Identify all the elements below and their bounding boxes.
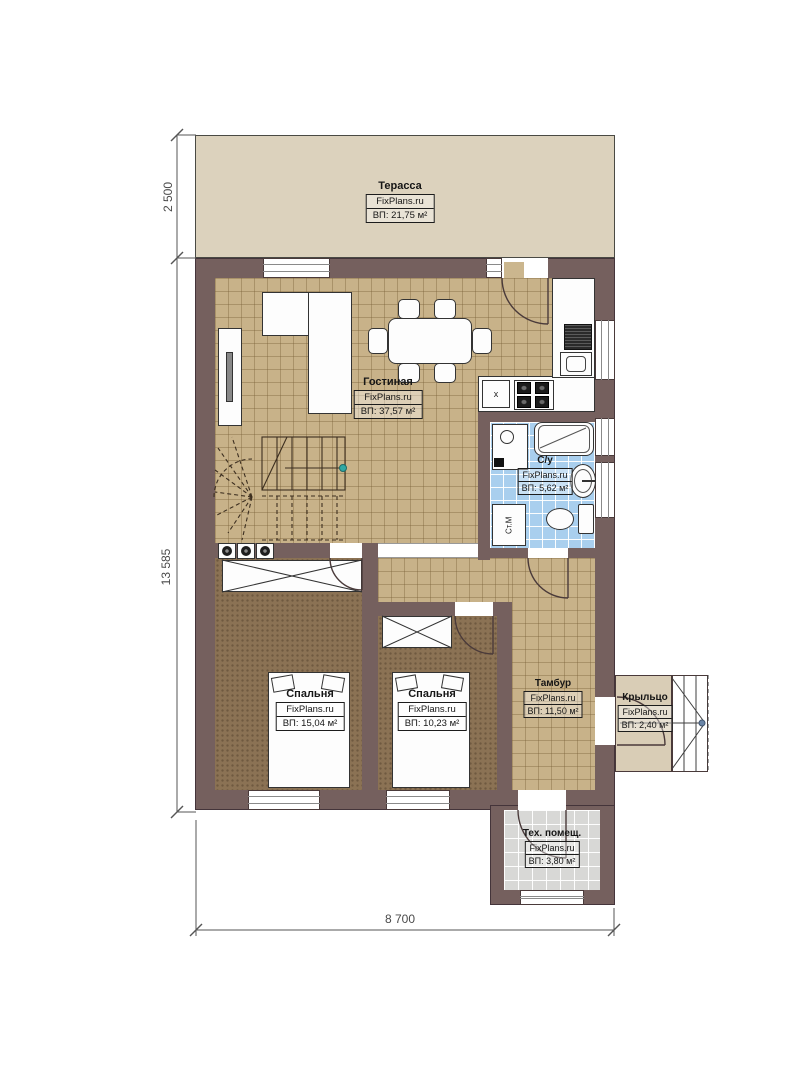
wardrobe-bedroom2 <box>382 616 452 648</box>
window-top-small <box>486 258 502 278</box>
bathroom-label: С/у FixPlans.ru ВП: 5,62 м² <box>518 455 573 496</box>
stool <box>256 543 274 559</box>
floor-plan-canvas: x Ст.М <box>0 0 792 1080</box>
terrace-label: Терасса FixPlans.ru ВП: 21,75 м² <box>366 180 435 223</box>
dining-table <box>388 318 472 364</box>
toilet-bowl <box>546 508 574 530</box>
window-tech-room <box>520 890 584 905</box>
door-opening-tech <box>518 790 566 810</box>
stool <box>218 543 236 559</box>
door-opening-bathroom <box>528 548 568 558</box>
window-kitchen-right <box>595 320 615 380</box>
stove-burner <box>535 382 549 394</box>
wall-between-bedrooms <box>362 543 378 790</box>
terrace-door-leaf <box>504 262 524 278</box>
cabinet-basin-circle <box>500 430 514 444</box>
tv-screen <box>226 352 233 402</box>
washbasin-inner <box>574 469 592 493</box>
dimension-terrace-depth: 2 500 <box>161 167 175 227</box>
stove-burner <box>517 396 531 408</box>
stove-burner <box>517 382 531 394</box>
fridge <box>564 324 592 350</box>
chair <box>434 299 456 319</box>
living-room-label: Гостиная FixPlans.ru ВП: 37,57 м² <box>354 376 423 419</box>
bedroom1-label: Спальня FixPlans.ru ВП: 15,04 м² <box>276 688 345 731</box>
window-bath-lower <box>595 462 615 518</box>
vestibule-label: Тамбур FixPlans.ru ВП: 11,50 м² <box>523 678 582 719</box>
window-bedroom2 <box>386 790 450 810</box>
tech-room-label: Тех. помещ. FixPlans.ru ВП: 3,80 м² <box>523 828 581 869</box>
chair <box>368 328 388 354</box>
window-bath-upper <box>595 418 615 456</box>
window-bedroom1 <box>248 790 320 810</box>
cabinet-detail <box>494 458 504 467</box>
porch-steps <box>672 675 708 772</box>
sink-bowl <box>566 356 586 372</box>
toilet-tank <box>578 504 594 534</box>
stool <box>237 543 255 559</box>
door-opening-porch <box>595 697 615 745</box>
wall-bathroom-left <box>478 410 490 560</box>
washing-machine: Ст.М <box>492 504 526 546</box>
dimension-building-width: 8 700 <box>360 912 440 926</box>
bedroom2-label: Спальня FixPlans.ru ВП: 10,23 м² <box>398 688 467 731</box>
vestibule-floor <box>512 558 595 790</box>
chair <box>398 299 420 319</box>
door-opening-bedroom2 <box>455 602 493 616</box>
dimension-building-height: 13 585 <box>159 532 173 602</box>
bathtub-inner <box>538 425 590 453</box>
passage-living-hall <box>378 543 478 558</box>
sofa-vertical <box>308 292 352 414</box>
door-opening-bedroom1 <box>330 543 362 558</box>
stove-burner <box>535 396 549 408</box>
window-living-top <box>263 258 330 278</box>
wardrobe-bedroom1 <box>222 560 362 592</box>
chair <box>472 328 492 354</box>
chair <box>434 363 456 383</box>
kitchen-sink-cabinet: x <box>482 380 510 408</box>
porch-label: Крыльцо FixPlans.ru ВП: 2,40 м² <box>618 692 673 733</box>
wall-bedroom2-vestibule <box>497 602 512 790</box>
